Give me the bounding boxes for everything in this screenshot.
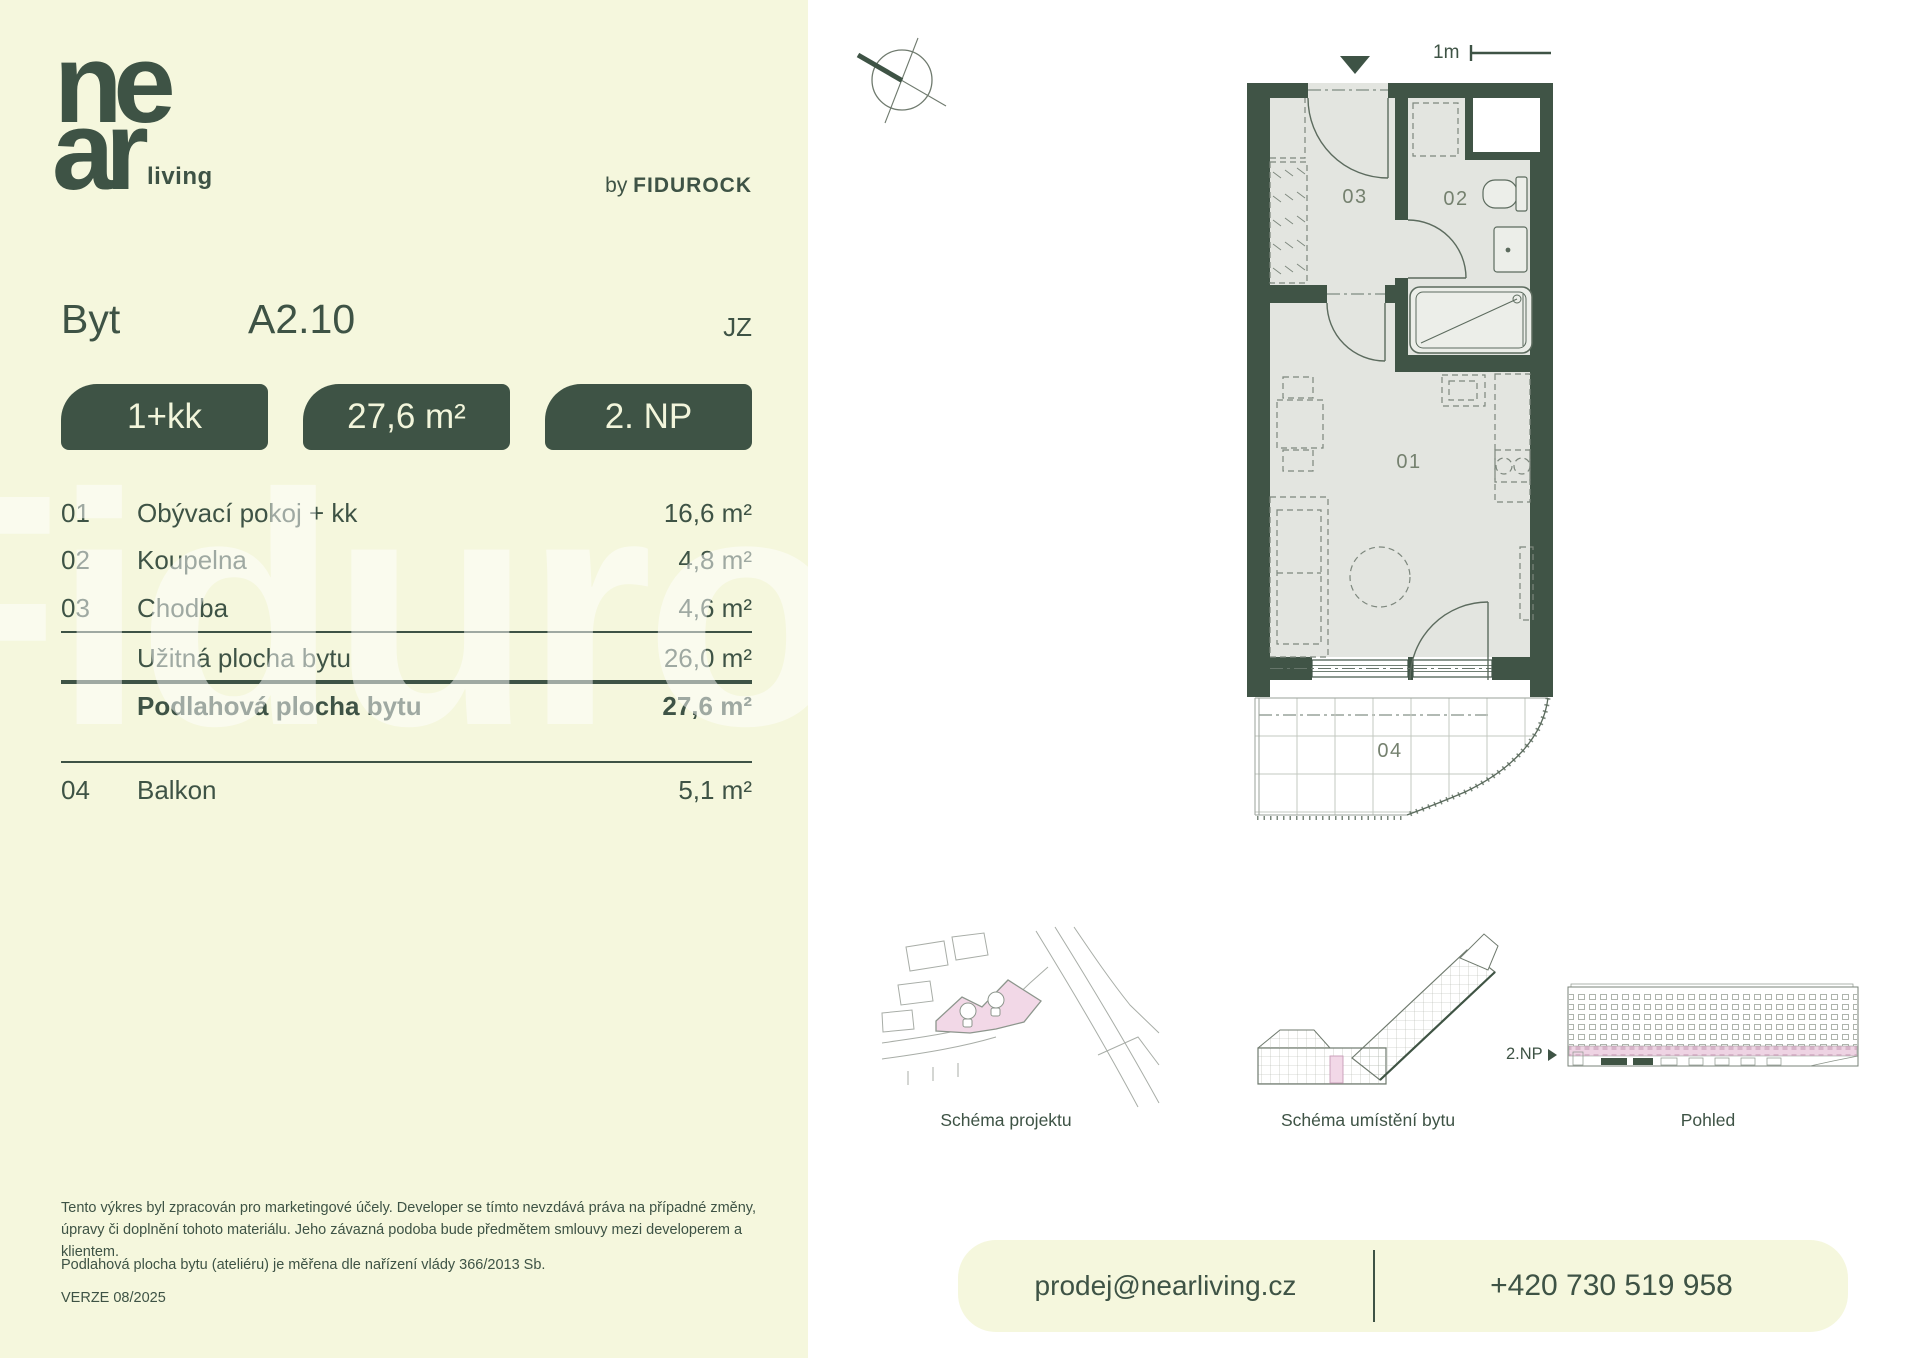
highlighted-unit [1330, 1056, 1343, 1083]
site-plan-caption: Schéma projektu [876, 1110, 1136, 1131]
brand-logo-row2: ar [52, 95, 140, 207]
sink [1494, 227, 1527, 272]
unit-type-label: Byt [61, 296, 120, 343]
byline-brand: FIDUROCK [633, 174, 752, 197]
room-area: 16,6 m² [664, 498, 752, 529]
apartment-factsheet: ne ar living by FIDUROCK Byt A2.10 JZ 1+… [0, 0, 1920, 1358]
table-divider [61, 631, 752, 633]
table-row-total-area: Podlahová plocha bytu 27,6 m² [61, 689, 752, 723]
room-label: Obývací pokoj + kk [137, 498, 664, 529]
floor-plan: 03 02 01 04 [1245, 50, 1555, 825]
room-number: 04 [61, 775, 137, 806]
measurement-note: Podlahová plocha bytu (ateliéru) je měře… [61, 1255, 766, 1277]
elevation-diagram [1565, 982, 1865, 1078]
room-label-03: 03 [1342, 186, 1367, 208]
brand-logo-suffix: living [147, 163, 213, 191]
compass-icon [852, 28, 952, 128]
byline-prefix: by [605, 174, 627, 197]
room-label: Chodba [137, 593, 678, 624]
room-label: Koupelna [137, 545, 678, 576]
unit-heading: Byt A2.10 JZ [61, 296, 752, 348]
washer-niche [1408, 98, 1465, 160]
room-area: 4,6 m² [678, 593, 752, 624]
badge-layout: 1+kk [61, 384, 268, 450]
shaft-cutout [1473, 98, 1540, 152]
unit-orientation: JZ [723, 312, 752, 343]
usable-area-value: 26,0 m² [664, 643, 752, 674]
room-label-02: 02 [1443, 188, 1468, 210]
room-number: 01 [61, 498, 137, 529]
table-divider [61, 761, 752, 763]
room-label-01: 01 [1396, 451, 1421, 473]
room-label-04: 04 [1377, 740, 1402, 762]
developer-byline: by FIDUROCK [400, 174, 752, 198]
unit-number: A2.10 [248, 296, 355, 343]
disclaimer-text: Tento výkres byl zpracován pro marketing… [61, 1198, 766, 1263]
floor-level-label: 2.NP [1506, 1045, 1543, 1064]
balcony-curved-edge [1407, 698, 1548, 815]
table-divider-thick [61, 680, 752, 684]
balcony-label: Balkon [137, 775, 678, 806]
badge-floor-label: 2. NP [605, 397, 693, 437]
table-row: 03 Chodba 4,6 m² [61, 591, 752, 625]
info-panel: ne ar living by FIDUROCK Byt A2.10 JZ 1+… [0, 0, 808, 1358]
contact-email[interactable]: prodej@nearliving.cz [958, 1270, 1373, 1302]
elevation-caption: Pohled [1578, 1110, 1838, 1131]
contact-bar: prodej@nearliving.cz +420 730 519 958 [958, 1240, 1848, 1332]
unit-location-caption: Schéma umístění bytu [1238, 1110, 1498, 1131]
total-area-label: Podlahová plocha bytu [137, 691, 662, 722]
site-plan-diagram [878, 925, 1178, 1110]
room-area: 4,8 m² [678, 545, 752, 576]
badge-layout-label: 1+kk [127, 397, 202, 437]
building-elevation [1568, 984, 1858, 1066]
toilet [1483, 177, 1527, 211]
table-row-usable-area: Užitná plocha bytu 26,0 m² [61, 641, 752, 675]
badge-area: 27,6 m² [303, 384, 510, 450]
unit-location-diagram [1252, 930, 1502, 1105]
version-label: VERZE 08/2025 [61, 1288, 766, 1310]
balcony-area: 5,1 m² [678, 775, 752, 806]
usable-area-label: Užitná plocha bytu [137, 643, 664, 674]
arrow-right-icon [1548, 1049, 1557, 1061]
floor-level-marker: 2.NP [1506, 1045, 1557, 1064]
bathtub [1410, 287, 1532, 353]
room-number: 03 [61, 593, 137, 624]
badge-floor: 2. NP [545, 384, 752, 450]
badge-area-label: 27,6 m² [347, 397, 466, 437]
total-area-value: 27,6 m² [662, 691, 752, 722]
room-number: 02 [61, 545, 137, 576]
building-outline [1258, 934, 1498, 1084]
contact-phone[interactable]: +420 730 519 958 [1375, 1269, 1848, 1303]
table-row-balcony: 04 Balkon 5,1 m² [61, 773, 752, 807]
entrance-marker-icon [1340, 56, 1370, 74]
table-row: 01 Obývací pokoj + kk 16,6 m² [61, 496, 752, 530]
table-row: 02 Koupelna 4,8 m² [61, 543, 752, 577]
